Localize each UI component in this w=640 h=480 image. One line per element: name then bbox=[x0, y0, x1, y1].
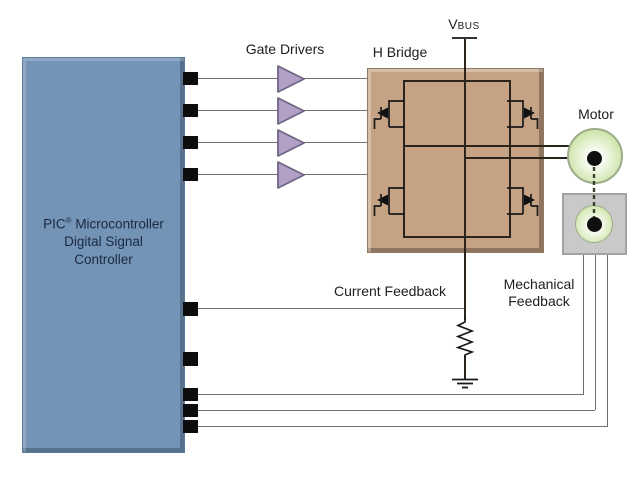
gate-drivers-label: Gate Drivers bbox=[225, 41, 345, 57]
gate-driver-triangle-icon-1 bbox=[276, 64, 306, 94]
pic-pin-mech-feedback-2 bbox=[183, 404, 198, 417]
mosfet-icon-bottom-left bbox=[373, 184, 405, 222]
vbus-label: VBUS bbox=[434, 16, 494, 32]
pic-pin-pwm-2 bbox=[183, 104, 198, 117]
pic-pin-mech-feedback-1 bbox=[183, 388, 198, 401]
mech-feedback-wire-2 bbox=[197, 410, 595, 411]
motor-label: Motor bbox=[566, 106, 626, 122]
encoder-shaft-dot bbox=[587, 217, 602, 232]
gate-driver-triangle-icon-4 bbox=[276, 160, 306, 190]
vbus-terminal-tick bbox=[452, 37, 477, 39]
pic-pin-pwm-1 bbox=[183, 72, 198, 85]
pic-microcontroller-label: PIC® Microcontroller Digital Signal Cont… bbox=[23, 212, 184, 268]
motor-phase-line-b bbox=[465, 157, 575, 159]
motor-shaft-dot bbox=[587, 151, 602, 166]
motor-control-block-diagram: PIC® Microcontroller Digital Signal Cont… bbox=[0, 0, 640, 480]
motor-phase-line-a bbox=[404, 145, 569, 147]
pic-pin-mech-feedback-3 bbox=[183, 420, 198, 433]
current-feedback-label: Current Feedback bbox=[320, 283, 460, 299]
mosfet-icon-top-left bbox=[373, 97, 405, 135]
mosfet-icon-top-right bbox=[507, 97, 539, 135]
pic-microcontroller-block: PIC® Microcontroller Digital Signal Cont… bbox=[22, 57, 185, 453]
mechanical-feedback-label: Mechanical Feedback bbox=[489, 276, 589, 310]
h-bridge-inner-circuit bbox=[403, 80, 511, 238]
mech-feedback-wire-3 bbox=[197, 426, 608, 427]
mosfet-icon-bottom-right bbox=[507, 184, 539, 222]
pic-pin-pwm-3 bbox=[183, 136, 198, 149]
gate-driver-triangle-icon-3 bbox=[276, 128, 306, 158]
h-bridge-label: H Bridge bbox=[350, 44, 450, 60]
shunt-resistor-icon bbox=[454, 318, 476, 358]
current-feedback-wire bbox=[197, 308, 465, 309]
mech-feedback-wire-2-vertical bbox=[595, 255, 596, 410]
pic-pin-current-feedback bbox=[183, 302, 198, 316]
shunt-to-ground-line bbox=[464, 356, 466, 379]
gate-driver-triangle-icon-2 bbox=[276, 96, 306, 126]
mech-feedback-wire-3-vertical bbox=[607, 255, 608, 426]
ground-icon bbox=[451, 378, 479, 392]
mech-feedback-wire-1 bbox=[197, 394, 584, 395]
pic-pin-pwm-4 bbox=[183, 168, 198, 181]
pic-pin-unconnected bbox=[183, 352, 198, 366]
